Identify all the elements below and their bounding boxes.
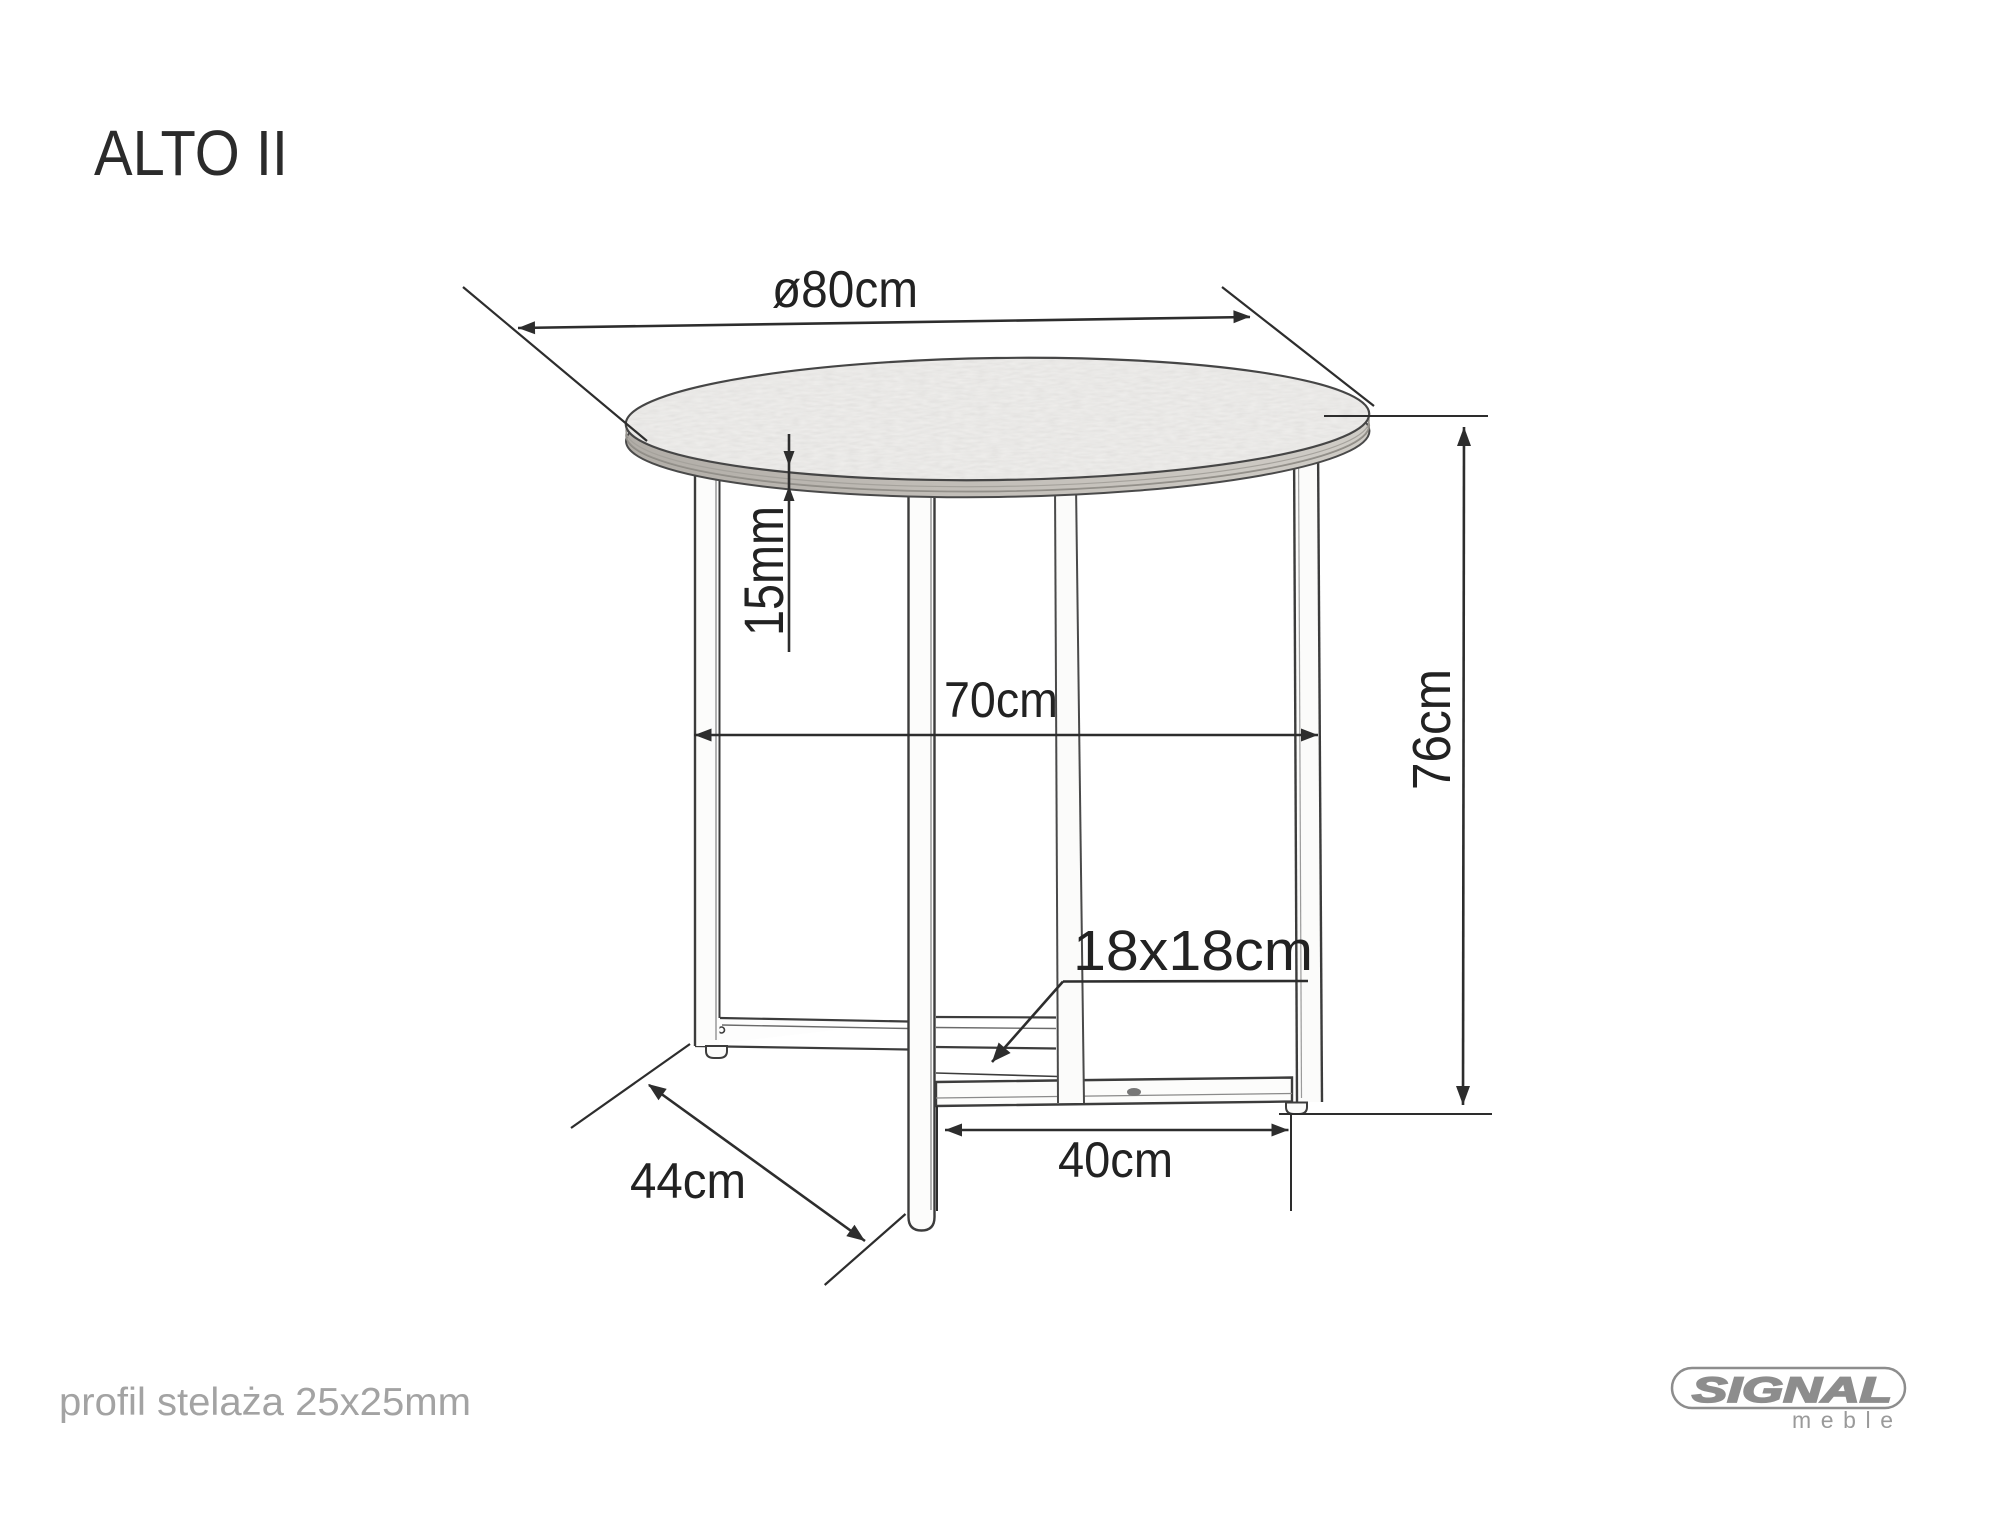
svg-text:70cm: 70cm <box>944 672 1058 728</box>
svg-text:18x18cm: 18x18cm <box>1073 919 1313 983</box>
svg-text:15mm: 15mm <box>732 506 795 636</box>
svg-text:meble: meble <box>1792 1407 1903 1433</box>
svg-text:ALTO II: ALTO II <box>94 117 288 189</box>
svg-text:76cm: 76cm <box>1402 669 1462 790</box>
svg-text:SIGNAL: SIGNAL <box>1692 1371 1892 1410</box>
svg-text:profil stelaża 25x25mm: profil stelaża 25x25mm <box>59 1381 471 1424</box>
svg-text:44cm: 44cm <box>630 1153 746 1209</box>
svg-text:40cm: 40cm <box>1058 1132 1173 1188</box>
svg-text:ø80cm: ø80cm <box>772 261 918 319</box>
